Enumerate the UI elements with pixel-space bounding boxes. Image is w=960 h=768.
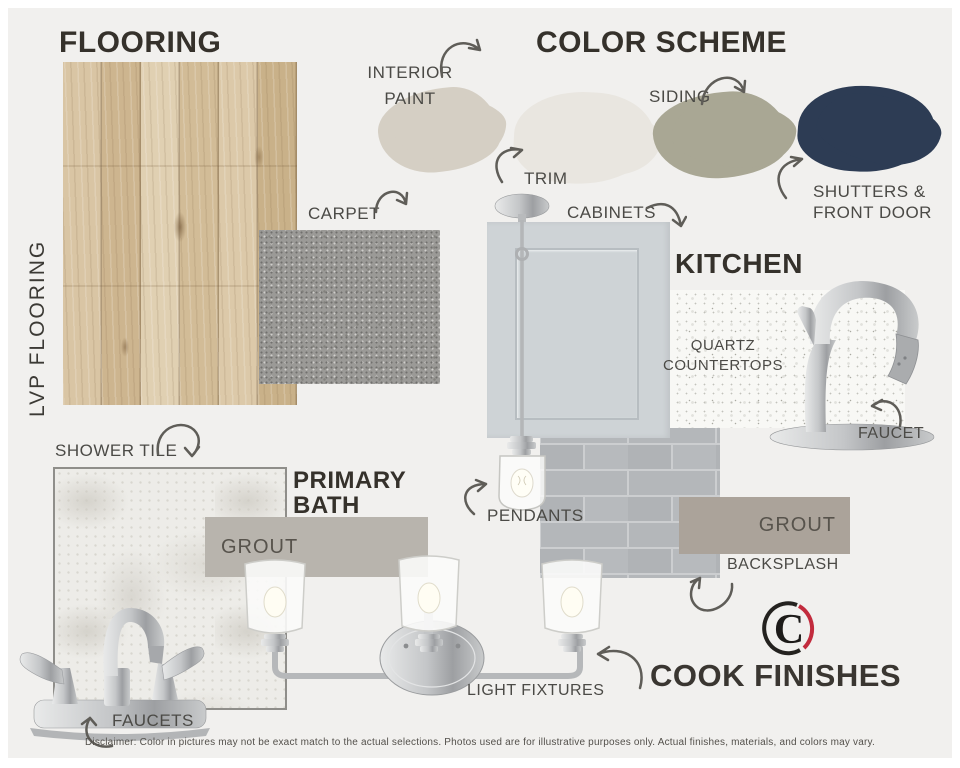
light-fixtures-arrow-icon	[582, 642, 646, 698]
kitchen-grout-label: GROUT	[759, 514, 836, 537]
brand-logo-letter: C	[774, 607, 804, 653]
brand-name: COOK FINISHES	[650, 658, 901, 694]
trim-arrow-icon	[492, 142, 532, 186]
siding-arrow-icon	[698, 68, 752, 112]
brand-logo-icon: C	[761, 601, 817, 659]
shutters-arrow-icon	[774, 154, 814, 200]
primary-bath-title-line2: BATH	[293, 492, 360, 519]
shutters-label-line1: SHUTTERS &	[813, 182, 926, 201]
interior-paint-arrow-icon	[436, 34, 486, 80]
kitchen-grout-bar: GROUT	[679, 497, 850, 554]
pendant-light-image	[494, 192, 556, 514]
faucet-arrow-icon	[866, 394, 904, 430]
pendants-label: PENDANTS	[487, 505, 584, 527]
shutters-front-door-label: SHUTTERS & FRONT DOOR	[813, 181, 932, 223]
quartz-countertops-label: QUARTZ COUNTERTOPS	[660, 336, 786, 376]
quartz-label-line1: QUARTZ	[691, 337, 755, 354]
shutters-label-line2: FRONT DOOR	[813, 203, 932, 222]
carpet-sample	[259, 230, 440, 384]
faucets-label: FAUCETS	[112, 710, 194, 732]
color-scheme-title: COLOR SCHEME	[536, 26, 787, 60]
finishes-mood-board: GROUT GROUT	[8, 8, 952, 758]
backsplash-label: BACKSPLASH	[727, 555, 839, 576]
pendants-arrow-icon	[462, 478, 500, 516]
kitchen-title: KITCHEN	[675, 248, 803, 280]
carpet-arrow-icon	[372, 184, 410, 226]
backsplash-arrow-icon	[688, 574, 740, 618]
primary-bath-title: PRIMARY BATH	[293, 468, 406, 518]
carpet-label: CARPET	[308, 203, 380, 225]
shower-tile-arrow-icon	[154, 416, 206, 466]
disclaimer-text: Disclaimer: Color in pictures may not be…	[8, 737, 952, 748]
primary-bath-title-line1: PRIMARY	[293, 467, 406, 494]
cabinets-label: CABINETS	[567, 202, 656, 224]
cabinets-arrow-icon	[645, 200, 687, 232]
quartz-label-line2: COUNTERTOPS	[663, 357, 783, 374]
lvp-flooring-vertical-label: LVP FLOORING	[26, 232, 50, 417]
interior-paint-label-line2: PAINT	[384, 89, 435, 108]
flooring-title: FLOORING	[59, 26, 221, 60]
shutters-front-door-swatch	[795, 81, 937, 176]
